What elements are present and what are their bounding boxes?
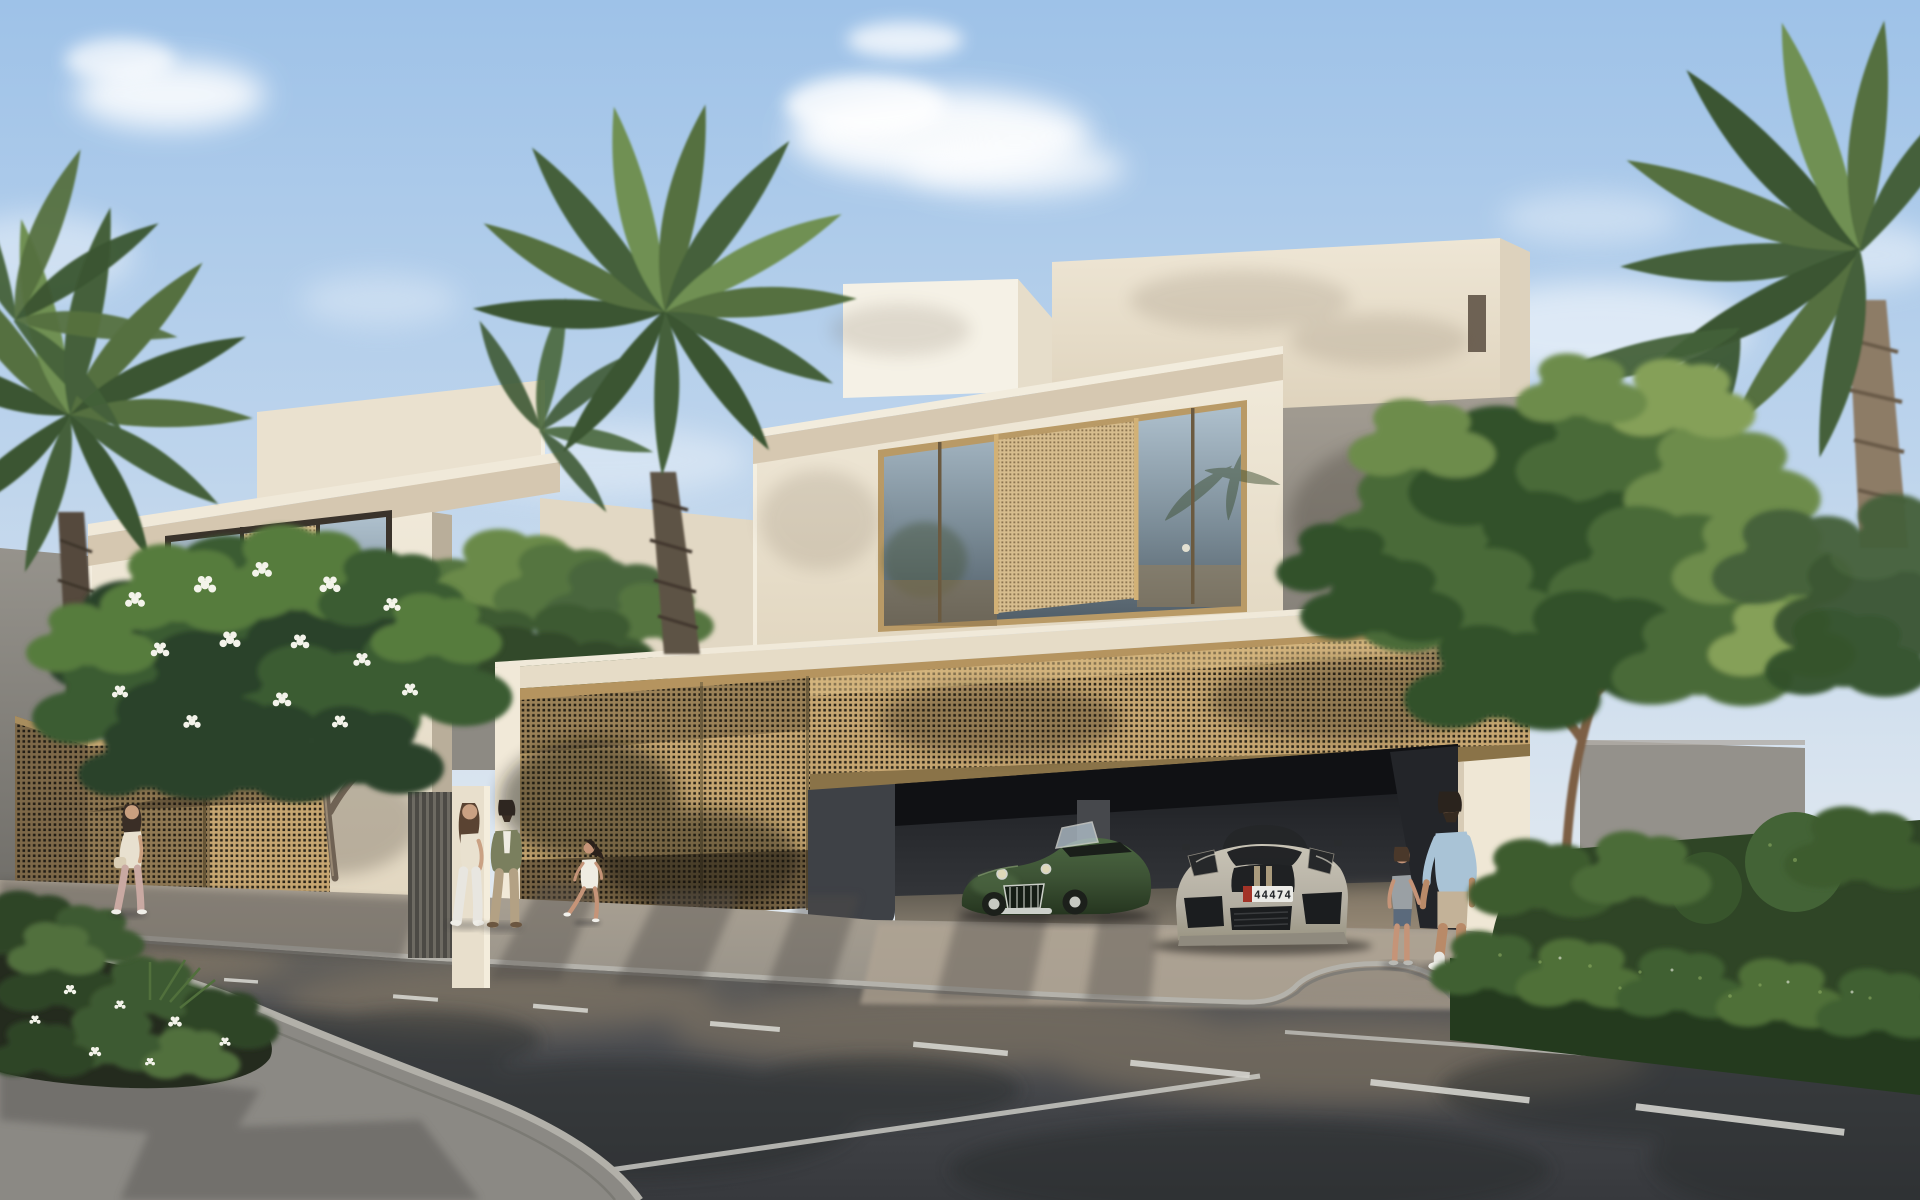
headlight — [997, 869, 1007, 879]
shorts — [1437, 892, 1468, 928]
headlight — [1041, 864, 1050, 873]
window-mesh-panel — [997, 421, 1137, 613]
grey-sports-car: 44474 — [1152, 825, 1372, 955]
architectural-render: 44474 — [0, 0, 1920, 1200]
scene-canvas: 44474 — [0, 0, 1920, 1200]
license-plate: 44474 — [1243, 886, 1293, 902]
facade-recess — [1468, 295, 1486, 352]
plate-number: 44474 — [1254, 889, 1292, 902]
plate-badge — [1243, 886, 1252, 902]
